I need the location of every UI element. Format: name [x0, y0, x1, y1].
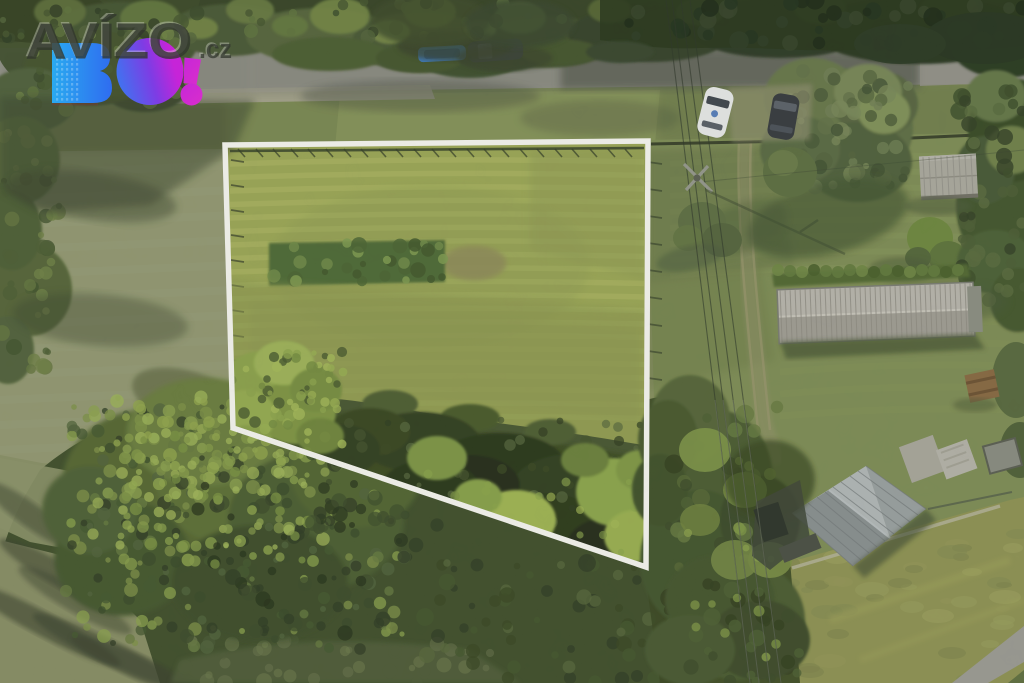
svg-text:AVÍZO: AVÍZO: [26, 15, 192, 69]
svg-text:.cz: .cz: [199, 34, 232, 64]
